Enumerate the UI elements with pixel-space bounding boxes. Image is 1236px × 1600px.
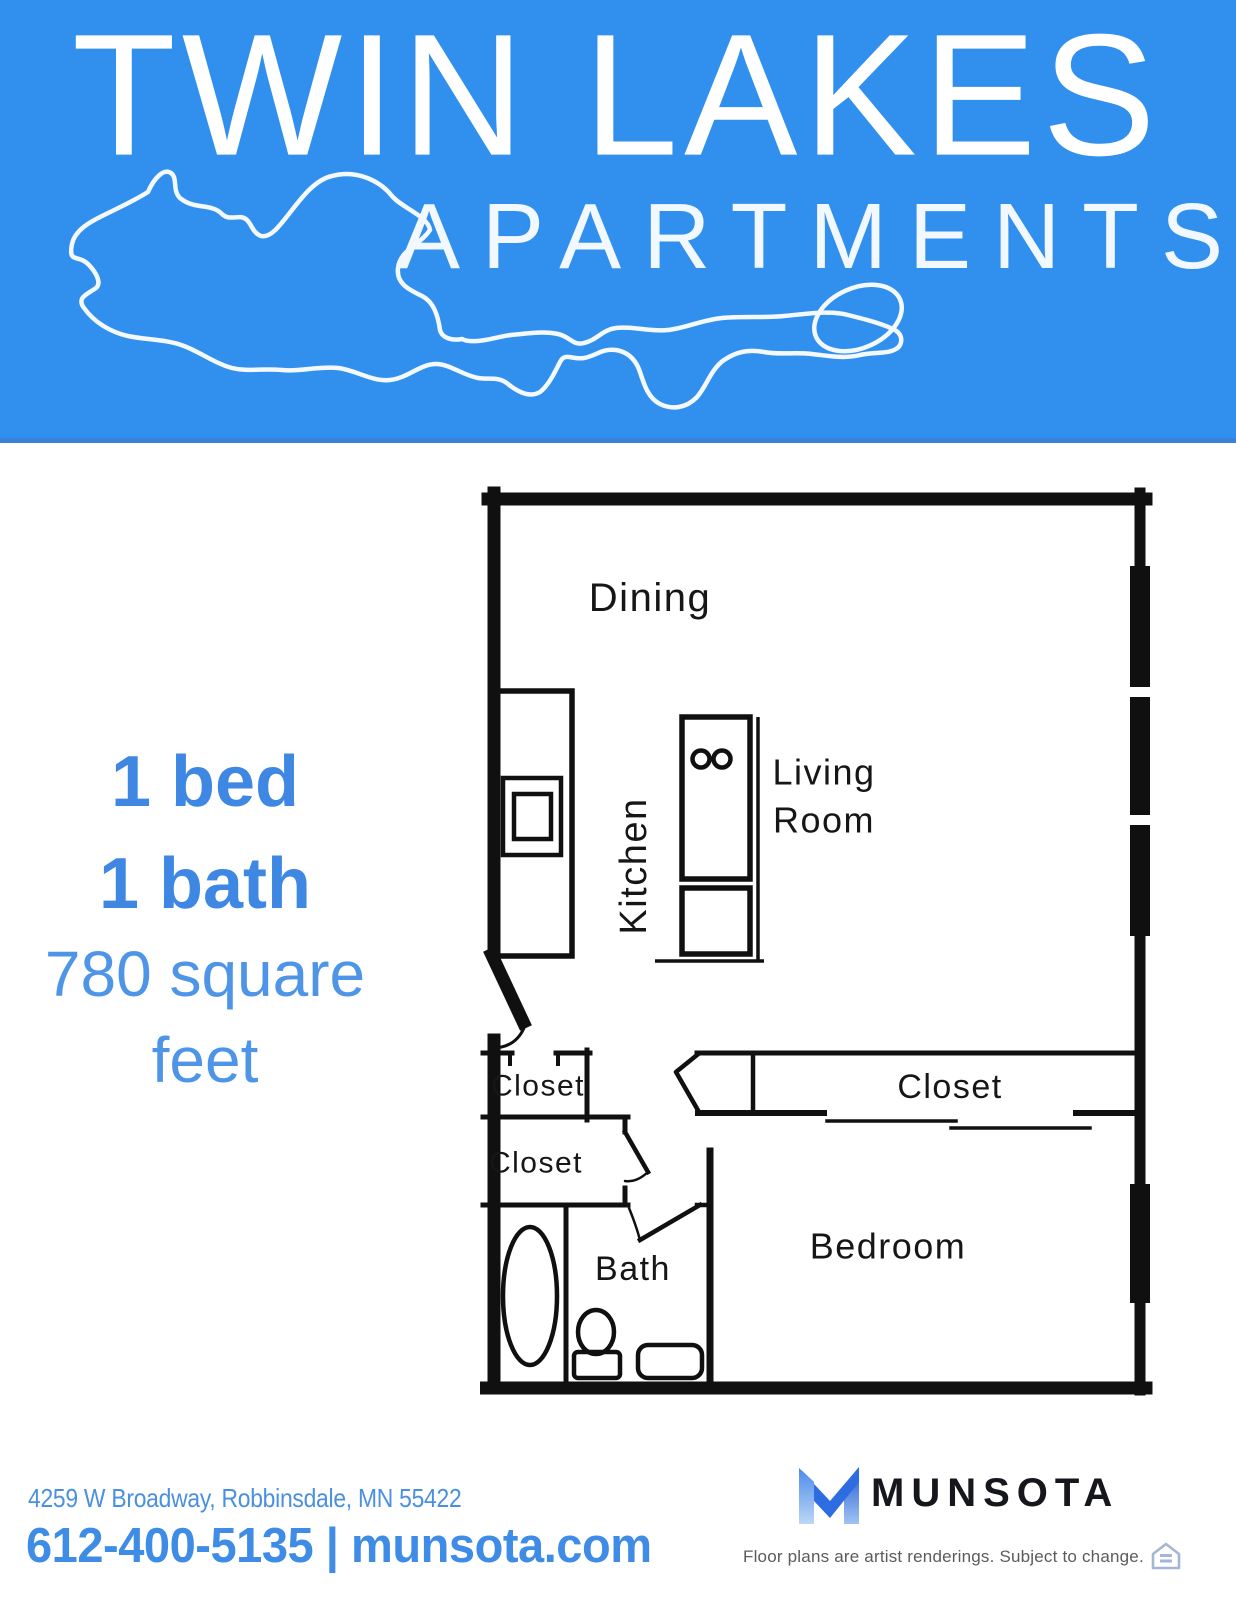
room-label-closet-entry: Closet (491, 1070, 585, 1103)
disclaimer-text: Floor plans are artist renderings. Subje… (743, 1546, 1144, 1568)
equal-housing-opportunity-icon (1150, 1541, 1182, 1571)
phone-website-text: 612-400-5135 | munsota.com (26, 1520, 652, 1572)
square-feet-line2: feet (20, 1028, 390, 1092)
munsota-m-logo-icon (797, 1456, 861, 1524)
room-label-living-line1: Living (772, 752, 875, 793)
property-subtitle: APARTMENTS (398, 196, 1236, 276)
floor-plan: Dining Kitchen Living Room Closet Closet… (480, 485, 1160, 1400)
flyer-page: TWIN LAKES APARTMENTS 1 bed 1 bath 780 s… (0, 0, 1236, 1600)
baths-count: 1 bath (20, 848, 390, 920)
window-blocks (1130, 566, 1150, 1303)
banner: TWIN LAKES APARTMENTS (0, 0, 1236, 443)
room-label-bath: Bath (595, 1250, 671, 1288)
room-label-closet-hall: Closet (489, 1147, 583, 1180)
brand-block: MUNSOTA (797, 1456, 1157, 1526)
room-label-living-line2: Room (773, 800, 875, 841)
square-feet-line1: 780 square (20, 942, 390, 1006)
room-label-dining: Dining (589, 576, 711, 620)
room-label-kitchen: Kitchen (613, 797, 655, 934)
room-label-closet-bedroom: Closet (897, 1068, 1002, 1106)
property-title: TWIN LAKES (72, 19, 1162, 172)
brand-name: MUNSOTA (871, 1472, 1119, 1514)
beds-count: 1 bed (20, 746, 390, 818)
room-label-bedroom: Bedroom (810, 1226, 967, 1267)
address-text: 4259 W Broadway, Robbinsdale, MN 55422 (28, 1483, 461, 1513)
